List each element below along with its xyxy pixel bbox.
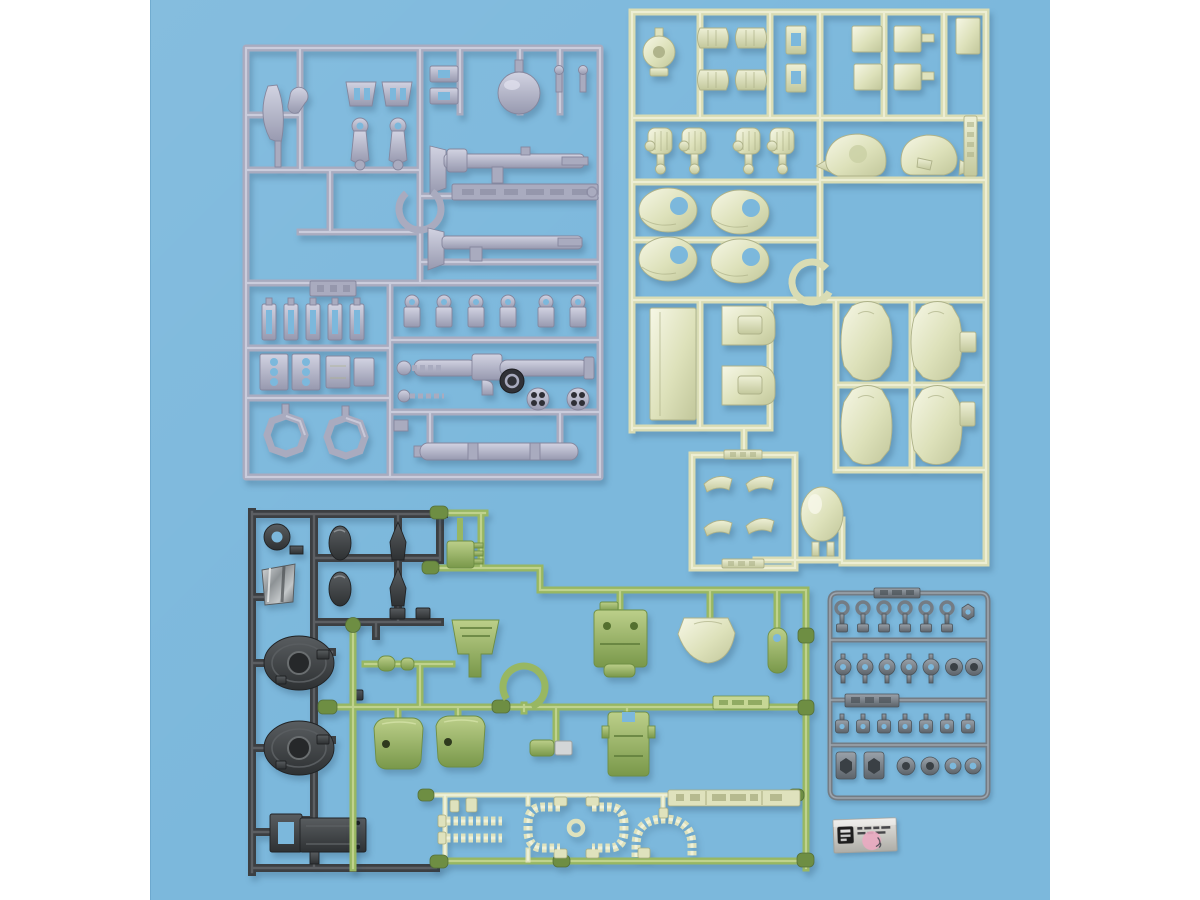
part-frame-small xyxy=(328,298,342,340)
embossed-tag-green xyxy=(713,696,769,709)
part-wrist-guard xyxy=(698,70,729,90)
part-foot xyxy=(639,237,697,281)
part-foot xyxy=(639,188,697,232)
part-ring-mount xyxy=(500,295,516,327)
part-waist-block xyxy=(602,712,655,776)
part-shoulder-shield-2 xyxy=(264,721,334,775)
part-green-leg-shell xyxy=(374,718,423,769)
part-polycap-hex xyxy=(962,604,974,620)
photo-canvas xyxy=(0,0,1200,900)
part-ring-mount xyxy=(468,295,484,327)
part-leg-shell xyxy=(911,386,962,465)
part-pill-bracket xyxy=(768,628,787,673)
part-backpack xyxy=(594,602,647,677)
part-leg-shell xyxy=(841,386,892,465)
part-long-tube xyxy=(414,443,578,460)
part-frame-small xyxy=(350,298,364,340)
part-tall-plate xyxy=(650,308,696,420)
inspection-sticker xyxy=(833,818,897,853)
part-wrist-guard xyxy=(736,28,767,48)
embossed-plate-gray xyxy=(310,281,356,296)
part-wrist-guard xyxy=(736,70,767,90)
part-metal-bucket xyxy=(262,564,295,605)
part-frame-small xyxy=(306,298,320,340)
embossed-tag-gray xyxy=(452,184,598,200)
part-frame-small xyxy=(262,298,276,340)
part-foot xyxy=(711,239,769,283)
embossed-tag-pc-mid xyxy=(845,694,899,707)
part-leg-shell xyxy=(841,302,892,381)
embossed-tag-pale-vertical xyxy=(964,116,977,176)
part-arm-with-silver-tip xyxy=(530,740,572,756)
part-shoulder-shield-1 xyxy=(264,636,334,690)
part-green-leg-shell xyxy=(436,716,485,767)
photo-stage xyxy=(0,0,1200,900)
part-ring-mount xyxy=(436,295,452,327)
part-wrist-guard xyxy=(698,28,729,48)
part-foot xyxy=(711,190,769,234)
embossed-tag-pc-top xyxy=(874,588,920,598)
part-ring-mount xyxy=(538,295,554,327)
part-leg-shell xyxy=(911,302,962,381)
embossed-tag-bar-pale xyxy=(668,790,800,806)
part-frame-small xyxy=(284,298,298,340)
part-ring-mount xyxy=(570,295,586,327)
part-ring-mount xyxy=(404,295,420,327)
part-manifolds xyxy=(260,354,374,390)
